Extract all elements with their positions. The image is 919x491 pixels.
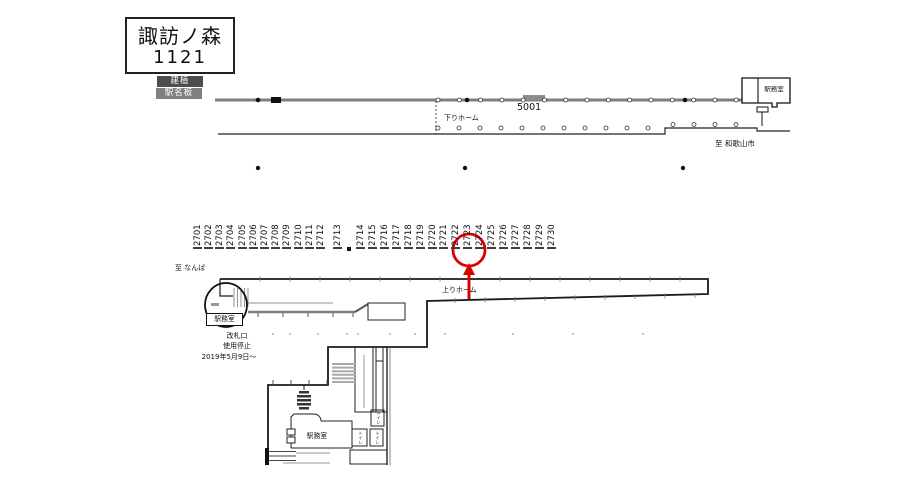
- closure-note-line2: 使用停止: [214, 341, 260, 351]
- separator-dots: [256, 166, 685, 170]
- ad-position-number: 2724: [474, 216, 486, 246]
- lower-platform-diagram: [205, 277, 708, 466]
- ad-position-number: 2714: [355, 216, 367, 246]
- position-marker: [347, 247, 351, 251]
- ad-position-number: 2709: [281, 216, 293, 246]
- stair-stack-icon: [297, 385, 311, 410]
- ad-position-number: 2719: [415, 216, 427, 246]
- toilet-label-2: トイレ: [352, 429, 367, 446]
- ad-position-number: 2721: [438, 216, 450, 246]
- ad-position-number: 2723: [462, 216, 474, 246]
- ad-position-number: 2722: [450, 216, 462, 246]
- station-ad-location-diagram: 諏訪ノ森 1121 建植 駅名板 下りホーム 5001 駅務室 至 和歌山市 至…: [0, 0, 919, 491]
- up-platform-label: 上りホーム: [442, 285, 477, 295]
- office-label-upper: 駅務室: [759, 83, 789, 93]
- ad-position-number: 2715: [367, 216, 379, 246]
- ad-position-number: 2718: [403, 216, 415, 246]
- ad-position-number: 2730: [546, 216, 558, 246]
- station-sign-icon: [757, 107, 768, 126]
- upper-platform-diagram: [215, 78, 790, 134]
- ad-position-number: 2729: [534, 216, 546, 246]
- direction-wakayamashi-label: 至 和歌山市: [715, 138, 755, 149]
- track-dot: [256, 98, 261, 103]
- station-name: 諏訪ノ森: [138, 24, 222, 48]
- ad-position-number: 2728: [522, 216, 534, 246]
- ad-position-number: 2713: [332, 216, 344, 246]
- ad-position-number: 2725: [486, 216, 498, 246]
- ad-position-number: 2727: [510, 216, 522, 246]
- badge-kenshoku: 建植: [157, 76, 203, 87]
- station-code: 1121: [153, 48, 207, 68]
- circled-office-label: 駅務室: [206, 313, 243, 326]
- track-block: [271, 97, 281, 103]
- room-office-label: 駅務室: [301, 430, 333, 440]
- car-stop-sign-label: 5001: [517, 102, 541, 113]
- station-title-box: 諏訪ノ森 1121: [125, 17, 235, 74]
- closure-note-line1: 改札口: [214, 331, 260, 341]
- ad-position-number: 2712: [315, 216, 327, 246]
- track-steps: [265, 448, 330, 465]
- ad-position-number: 2704: [225, 216, 237, 246]
- down-platform-label: 下りホーム: [444, 113, 479, 123]
- ad-position-number: 2716: [379, 216, 391, 246]
- toilet-label-3: トイレ: [370, 429, 383, 446]
- ad-position-number: 2717: [391, 216, 403, 246]
- stop-position-bar: [523, 95, 545, 100]
- direction-namba-label: 至 なんば: [175, 263, 205, 273]
- toilet-label-1: トイレ: [371, 410, 384, 426]
- ad-position-number: 2726: [498, 216, 510, 246]
- closure-note-line3: 2019年5月9日～: [186, 352, 272, 362]
- stairs-icon: [332, 364, 356, 382]
- badge-ekimeiban: 駅名板: [156, 88, 202, 99]
